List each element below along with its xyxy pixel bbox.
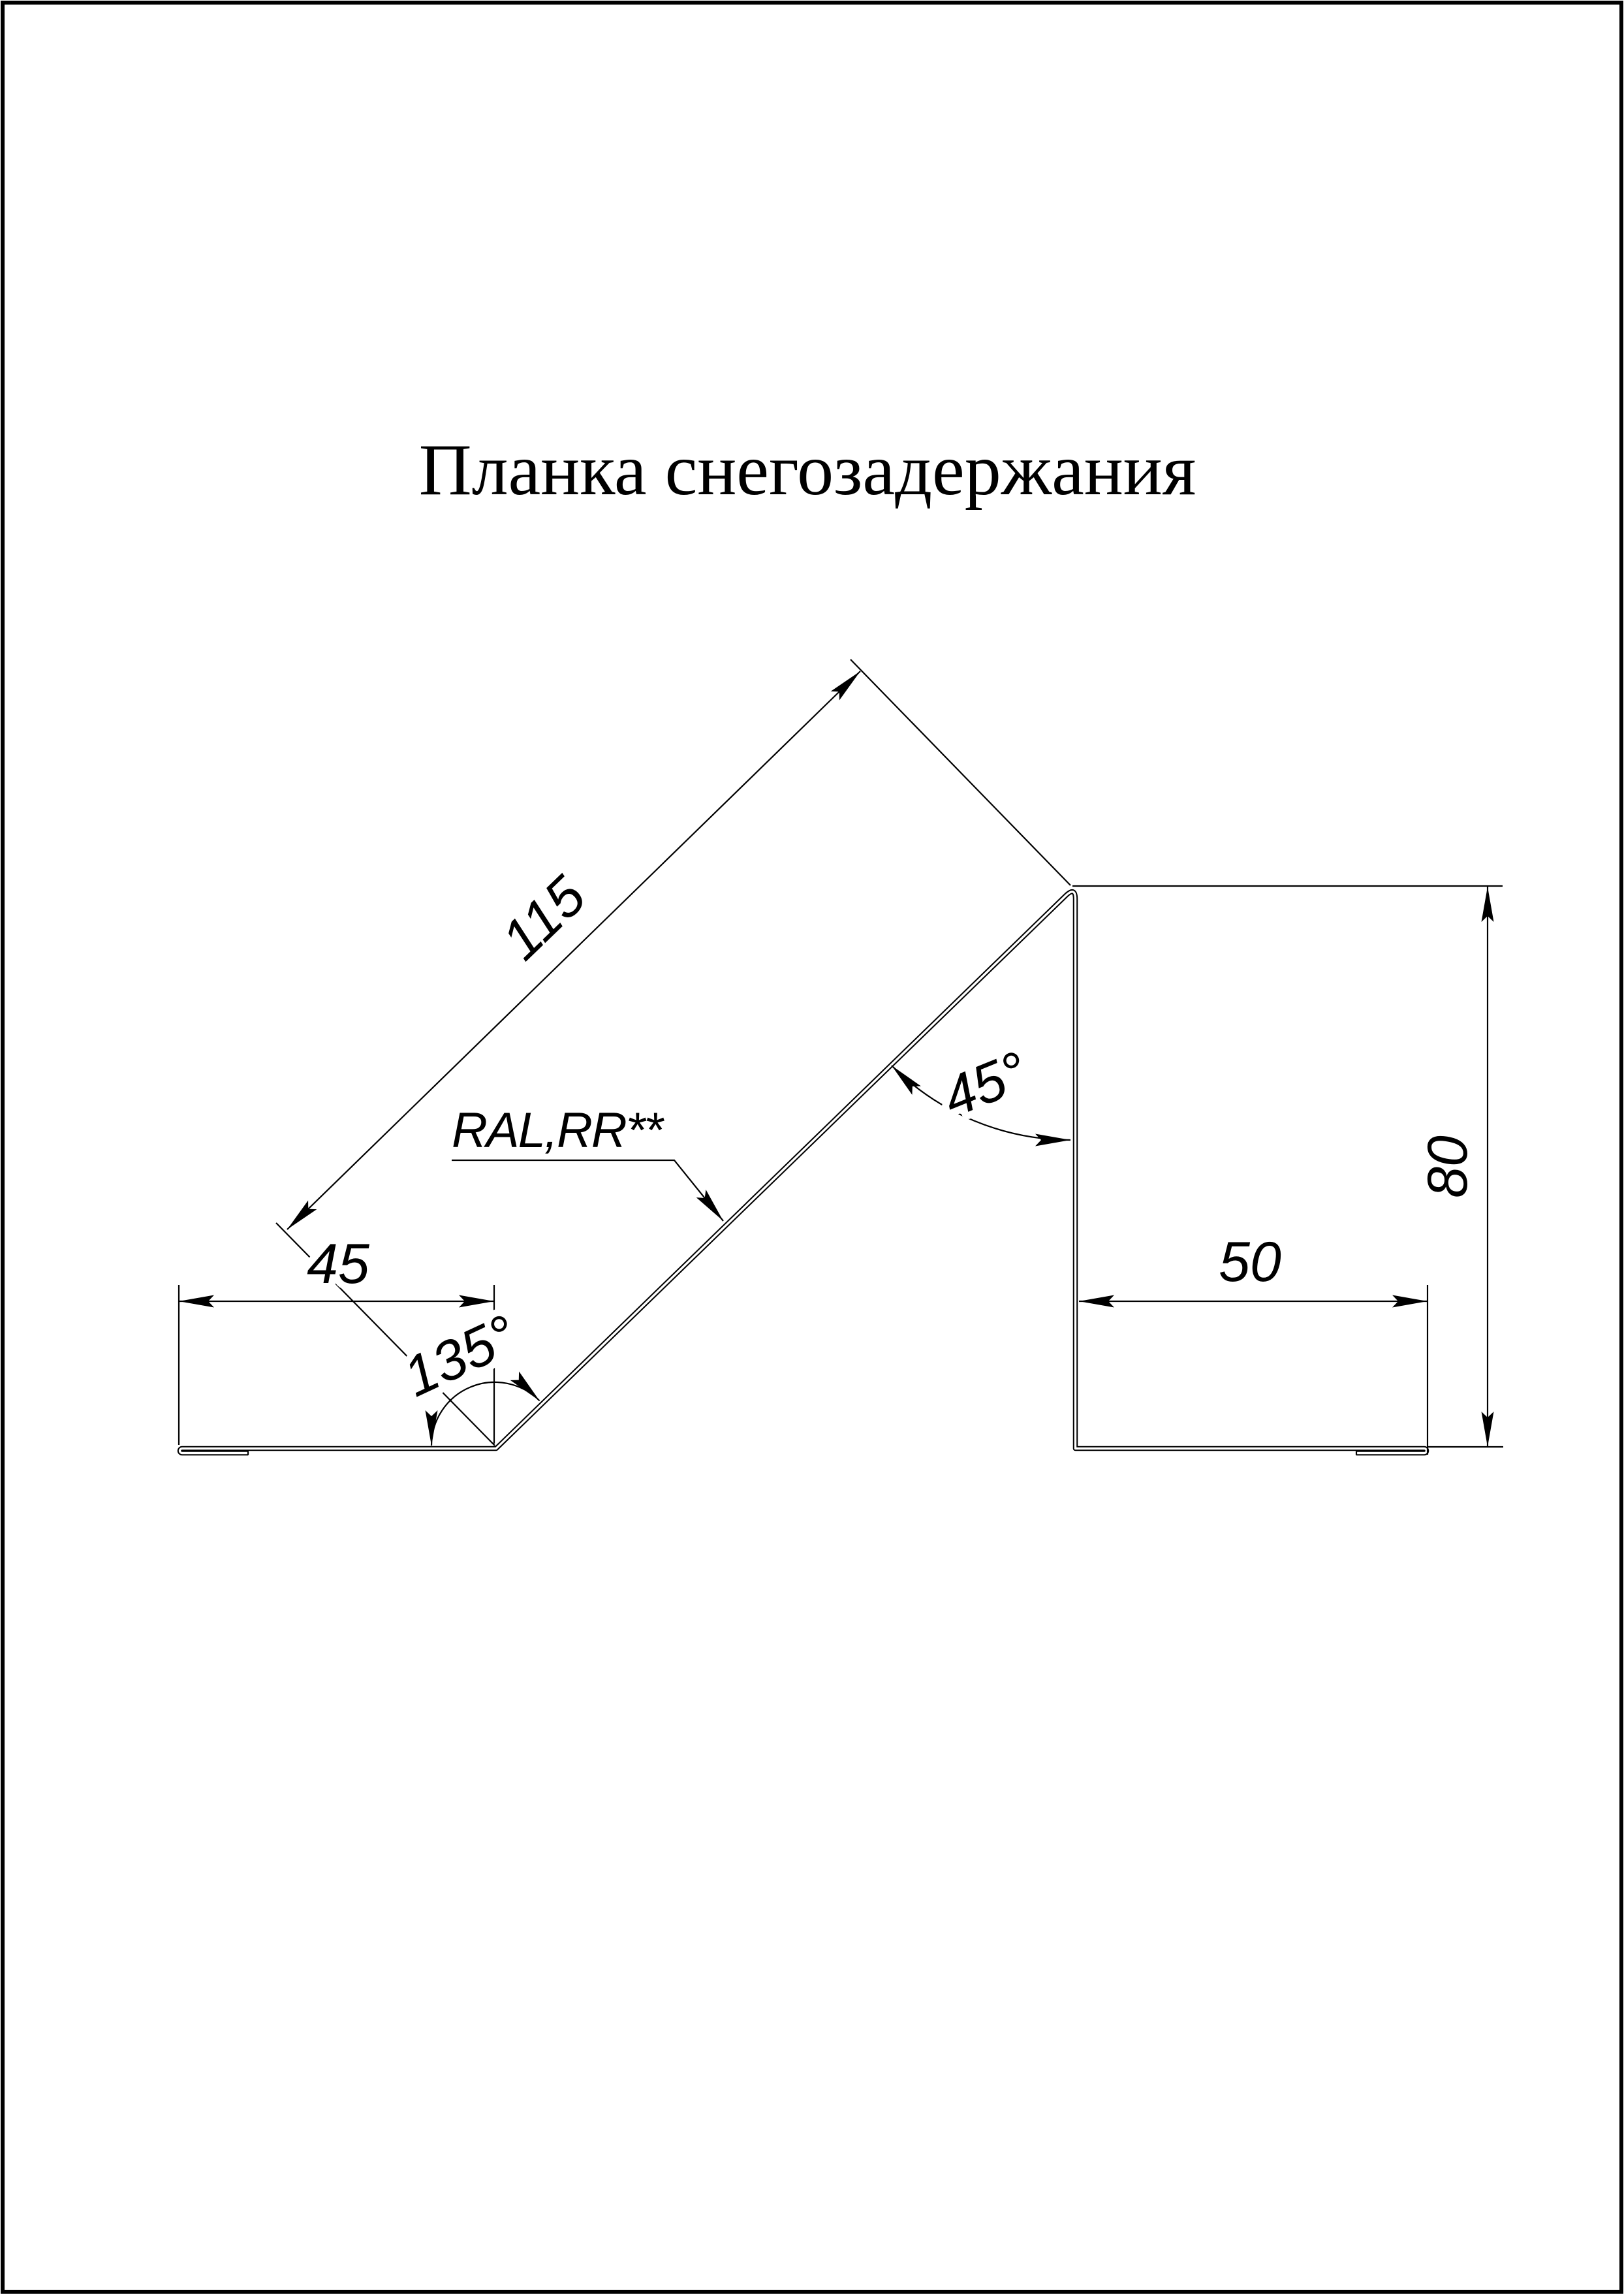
coating-callout: RAL,RR** [452, 1103, 728, 1225]
dim-115-label: 115 [490, 864, 598, 972]
dimension-115: 115 [276, 659, 1070, 1446]
angle-135-arrow-right-icon [510, 1371, 544, 1405]
angle-45-label: 45° [934, 1039, 1037, 1130]
profile-sheet-core [180, 892, 1427, 1453]
angle-45-arrow-upper-icon [887, 1061, 921, 1095]
angle-45: 45° [887, 1039, 1070, 1146]
coating-leader-arrow-icon [696, 1190, 728, 1225]
drawing-page: Планка снегозадержания 115 45 135° 45 [0, 0, 1624, 2295]
dim-50-label: 50 [1219, 1231, 1281, 1293]
dim-115-witness-upper [851, 659, 1070, 885]
dim-45-label: 45 [307, 1233, 370, 1295]
coating-leader-line [452, 1160, 723, 1221]
angle-135-arrow-left-icon [426, 1410, 438, 1446]
dim-80-label: 80 [1416, 1135, 1479, 1198]
dimension-50: 50 [1079, 1231, 1428, 1455]
page-title: Планка снегозадержания [419, 430, 1196, 511]
angle-45-arrow-lower-icon [1035, 1134, 1070, 1147]
page-border [3, 3, 1621, 2292]
profile-outline [180, 892, 1427, 1455]
dimension-80: 80 [1072, 886, 1503, 1447]
coating-label: RAL,RR** [452, 1103, 664, 1158]
technical-drawing-canvas: Планка снегозадержания 115 45 135° 45 [0, 0, 1624, 2295]
profile-sheet-outer [180, 892, 1427, 1453]
